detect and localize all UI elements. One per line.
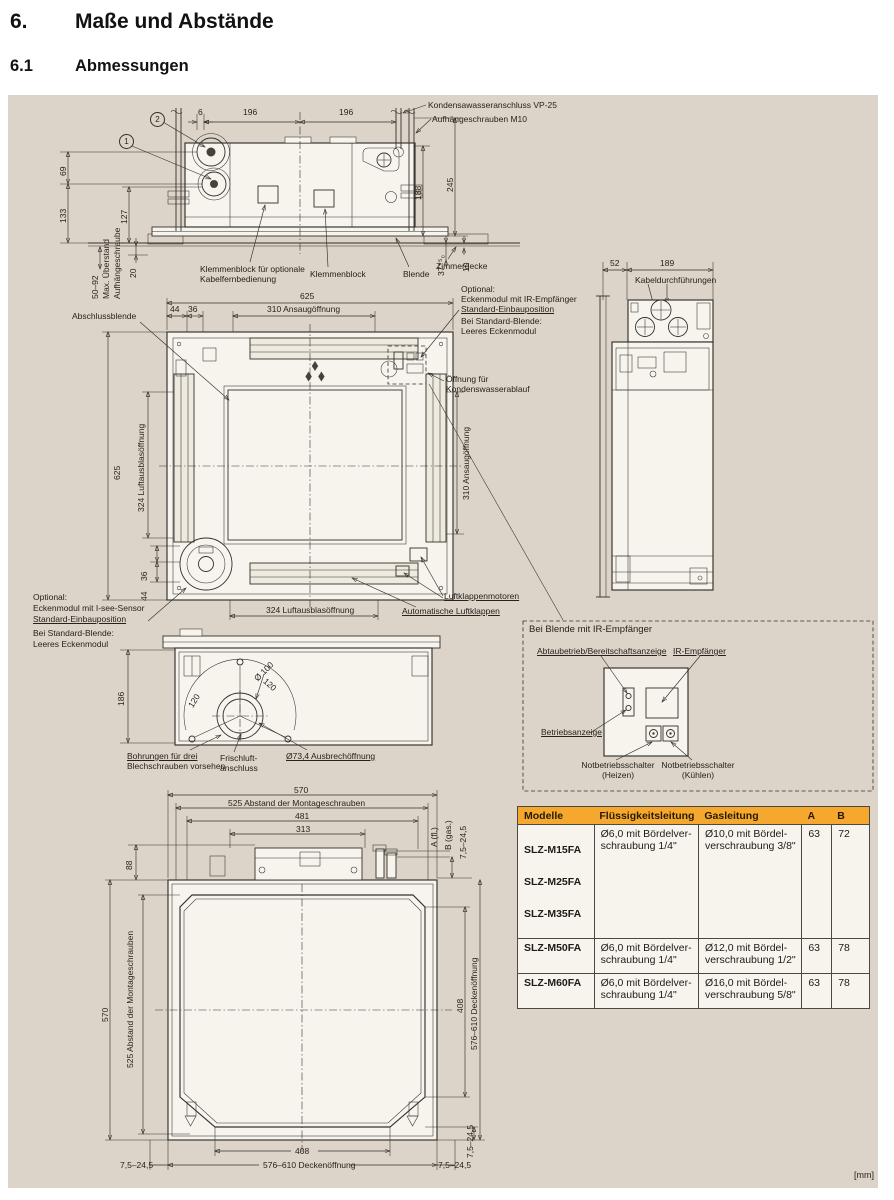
label-terminal-block: Klemmenblock <box>310 269 366 279</box>
table-header-row: Modelle Flüssigkeitsleitung Gasleitung A… <box>518 807 869 824</box>
dim-525-mounting-top: 525 Abstand der Montageschrauben <box>228 798 365 808</box>
label-standard-blende-ir: Bei Standard-Blende: <box>461 316 542 326</box>
dim-52: 52 <box>610 258 619 268</box>
dim-570-top: 570 <box>294 785 308 795</box>
dim-7-5-24-5-top-right: 7,5–24,5 <box>458 826 468 859</box>
dim-88: 88 <box>124 861 134 870</box>
table-row: SLZ-M15FA SLZ-M25FA SLZ-M35FA Ø6,0 mit B… <box>518 824 869 938</box>
cell-gas: Ø16,0 mit Bördel- verschraubung 5/8" <box>698 974 801 1008</box>
label-automatic-louvres: Automatische Luftklappen <box>402 606 500 616</box>
dim-ceiling-opening-bottom: 576–610 Deckenöffnung <box>263 1160 355 1170</box>
section-title: Maße und Abstände <box>75 10 274 34</box>
col-header-fluessigkeitsleitung: Flüssigkeitsleitung <box>593 807 698 824</box>
label-abschlussblende: Abschlussblende <box>72 311 136 321</box>
cell-models: SLZ-M15FA SLZ-M25FA SLZ-M35FA <box>518 825 594 938</box>
cell-fluid: Ø6,0 mit Bördelver- schraubung 1/4" <box>594 939 698 973</box>
ir-box-title: Bei Blende mit IR-Empfänger <box>529 624 652 635</box>
label-screw-holes-line2: Blechschrauben vorsehen <box>127 761 225 771</box>
dim-408-right: 408 <box>455 999 465 1013</box>
dim-7-5-24-5-bottom-right: 7,5–24,5 <box>438 1160 471 1170</box>
label-louvre-motors: Luftklappenmotoren <box>444 591 519 601</box>
dim-44-top: 44 <box>170 304 179 314</box>
cell-fluid: Ø6,0 mit Bördelver- schraubung 1/4" <box>594 974 698 1008</box>
dim-ceiling-opening-right: 576–610 Deckenöffnung <box>469 958 479 1050</box>
label-condensate-drain-opening: Öffnung für Kondenswasserablauf <box>446 374 530 394</box>
dim-7-5-24-5-bottom-left: 7,5–24,5 <box>120 1160 153 1170</box>
label-pipe-a-liquid: A (fl.) <box>429 827 439 847</box>
dim-324-outlet-bottom: 324 Luftausblasöffnung <box>266 605 354 615</box>
dim-73-knockout: Ø73,4 Ausbrechöffnung <box>286 751 375 761</box>
dim-44-bottom-left: 44 <box>139 592 149 601</box>
dim-69: 69 <box>58 167 68 176</box>
unit-note: [mm] <box>854 1170 874 1181</box>
dim-20: 20 <box>128 269 138 278</box>
dim-6: 6 <box>198 107 203 117</box>
dim-570-left: 570 <box>100 1008 110 1022</box>
cell-models: SLZ-M60FA <box>518 974 594 1008</box>
label-emergency-switch-heating: Notbetriebsschalter (Heizen) <box>578 760 658 780</box>
col-header-b: B <box>831 807 869 824</box>
label-fresh-air-connection: Frischluft- anschluss <box>220 753 258 773</box>
dim-133: 133 <box>58 209 68 223</box>
cell-b: 72 <box>831 825 869 938</box>
dim-50-92: 50–92 <box>90 275 100 299</box>
label-screw-holes-line1: Bohrungen für drei <box>127 751 197 761</box>
label-ceiling: Zimmerdecke <box>436 261 487 271</box>
callout-1-badge: 1 <box>119 134 134 149</box>
cell-models: SLZ-M50FA <box>518 939 594 973</box>
col-header-a: A <box>801 807 831 824</box>
label-cornermodule-isee: Eckenmodul mit I-see-Sensor <box>33 603 145 613</box>
cell-b: 78 <box>831 939 869 973</box>
table-row: SLZ-M50FA Ø6,0 mit Bördelver- schraubung… <box>518 938 869 973</box>
dim-310-intake-right: 310 Ansaugöffnung <box>461 427 471 500</box>
dim-189: 189 <box>660 258 674 268</box>
label-defrost-standby-indicator: Abtaubetrieb/Bereitschaftsanzeige <box>537 646 666 656</box>
label-standard-position-isee: Standard-Einbauposition <box>33 614 126 624</box>
cell-a: 63 <box>801 974 831 1008</box>
label-pipe-b-gas: B (gas.) <box>443 820 453 850</box>
label-blende: Blende <box>403 269 429 279</box>
table-row: SLZ-M60FA Ø6,0 mit Bördelver- schraubung… <box>518 973 869 1008</box>
dim-525-mounting-left: 525 Abstand der Montageschrauben <box>125 931 135 1068</box>
dim-196-right: 196 <box>339 107 353 117</box>
label-terminal-block-optional: Klemmenblock für optionale Kabelfernbedi… <box>200 264 305 284</box>
cell-a: 63 <box>801 825 831 938</box>
dim-481: 481 <box>295 811 309 821</box>
cell-gas: Ø12,0 mit Bördel- verschraubung 1/2" <box>698 939 801 973</box>
cell-b: 78 <box>831 974 869 1008</box>
cell-gas: Ø10,0 mit Bördel- verschraubung 3/8" <box>698 825 801 938</box>
label-cornermodule-ir: Eckenmodul mit IR-Empfänger <box>461 294 577 304</box>
label-max-ueberstand: Max. Überstand <box>101 239 111 299</box>
col-header-modelle: Modelle <box>518 807 593 824</box>
dim-36-top: 36 <box>188 304 197 314</box>
label-standard-position-ir: Standard-Einbauposition <box>461 304 554 314</box>
label-optional-ir: Optional: <box>461 284 495 294</box>
label-ir-receiver: IR-Empfänger <box>673 646 726 656</box>
section-number: 6. <box>10 10 28 34</box>
label-empty-cornermodule-isee: Leeres Eckenmodul <box>33 639 108 649</box>
label-standard-blende-isee: Bei Standard-Blende: <box>33 628 114 638</box>
cell-fluid: Ø6,0 mit Bördelver- schraubung 1/4" <box>594 825 698 938</box>
dim-310-intake-top: 310 Ansaugöffnung <box>267 304 340 314</box>
dim-188: 188 <box>413 186 423 200</box>
dim-186: 186 <box>116 692 126 706</box>
subsection-title: Abmessungen <box>75 57 189 76</box>
dim-196-left: 196 <box>243 107 257 117</box>
dim-625-top: 625 <box>300 291 314 301</box>
dim-7-5-24-5-bottom-right-rot: 7,5–24,5 <box>465 1125 475 1158</box>
col-header-gasleitung: Gasleitung <box>698 807 801 824</box>
label-aufhaengeschraube: Aufhängeschraube <box>112 228 122 299</box>
label-emergency-switch-cooling: Notbetriebsschalter (Kühlen) <box>658 760 738 780</box>
label-cable-bushings: Kabeldurchführungen <box>635 275 716 285</box>
label-empty-cornermodule-ir: Leeres Eckenmodul <box>461 326 536 336</box>
label-condensate-connection: Kondensawasseranschluss VP-25 <box>428 100 557 110</box>
dim-36-bottom-left: 36 <box>139 572 149 581</box>
label-hanging-bolts: Aufhängeschrauben M10 <box>432 114 527 124</box>
cell-a: 63 <box>801 939 831 973</box>
dim-625-left: 625 <box>112 466 122 480</box>
dim-127: 127 <box>119 210 129 224</box>
dim-324-outlet-left: 324 Luftausblasöffnung <box>136 424 146 512</box>
document-page: 6. Maße und Abstände 6.1 Abmessungen <box>0 0 894 1200</box>
dim-313: 313 <box>296 824 310 834</box>
subsection-number: 6.1 <box>10 57 33 76</box>
pipe-spec-table: Modelle Flüssigkeitsleitung Gasleitung A… <box>517 806 870 1009</box>
dim-245: 245 <box>445 178 455 192</box>
label-optional-isee: Optional: <box>33 592 67 602</box>
dim-408-bottom: 408 <box>295 1146 309 1156</box>
label-operation-indicator: Betriebsanzeige <box>541 727 602 737</box>
callout-2-badge: 2 <box>150 112 165 127</box>
